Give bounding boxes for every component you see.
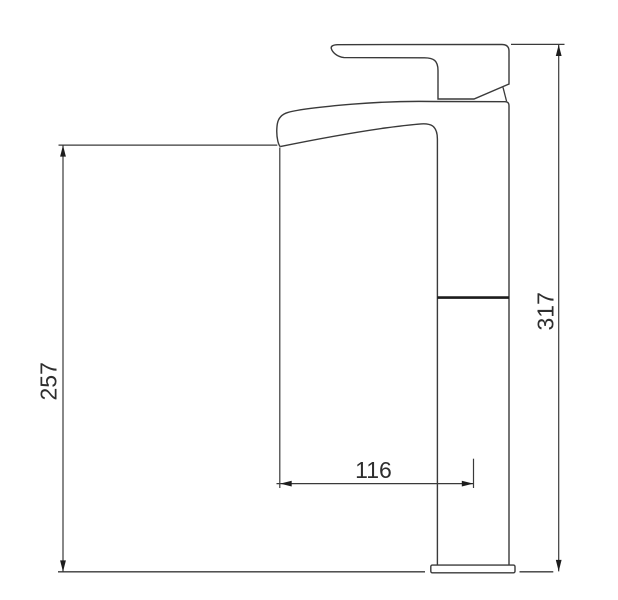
svg-text:257: 257 <box>36 362 62 400</box>
svg-text:317: 317 <box>533 292 559 330</box>
svg-text:116: 116 <box>355 457 392 483</box>
